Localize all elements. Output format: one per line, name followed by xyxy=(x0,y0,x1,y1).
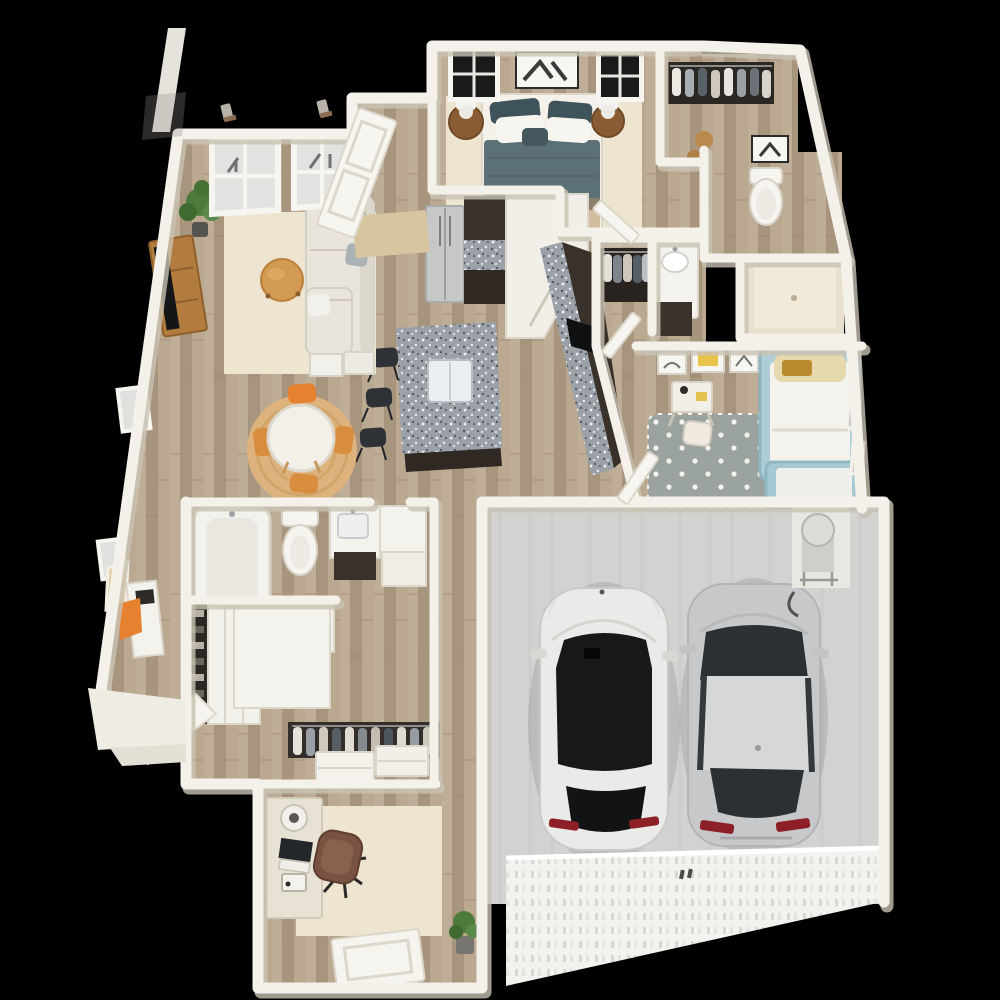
bedroom-wall-art xyxy=(516,52,578,88)
suv-glass-roof xyxy=(556,633,652,771)
entry-door-mat xyxy=(352,210,430,258)
laptop xyxy=(277,838,313,873)
sedan-windshield xyxy=(700,625,808,680)
kids-chair xyxy=(683,420,713,446)
bathroom-toilet xyxy=(282,510,318,575)
printer xyxy=(282,874,306,891)
closet-cabinet xyxy=(234,598,330,708)
kids-bedroom xyxy=(648,346,864,508)
floorplan-svg xyxy=(0,0,1000,1000)
bedroom-window-right xyxy=(596,50,644,102)
hall-closet xyxy=(600,248,652,302)
toilet-art xyxy=(752,136,788,162)
coffee-table xyxy=(261,259,303,301)
car-right-sedan xyxy=(679,584,829,846)
sedan-rear-glass xyxy=(710,768,804,818)
shower-room xyxy=(742,260,844,336)
vanity-sink xyxy=(662,252,688,272)
fridge xyxy=(426,206,464,302)
kids-bed xyxy=(760,348,860,508)
car-left-suv xyxy=(529,588,679,850)
sofa-side-tables xyxy=(310,352,374,376)
island xyxy=(396,322,502,472)
living-window-left xyxy=(212,138,278,214)
floorplan-render xyxy=(0,0,1000,1000)
office-desk xyxy=(266,798,322,918)
dining-table xyxy=(268,405,334,471)
office-exterior-door xyxy=(331,929,425,991)
vanity-base xyxy=(656,302,692,336)
corner-cabinet xyxy=(380,506,426,586)
toilet xyxy=(750,168,782,225)
kitchen-cabinet-run xyxy=(464,196,506,304)
bathroom-vanity xyxy=(330,506,380,580)
